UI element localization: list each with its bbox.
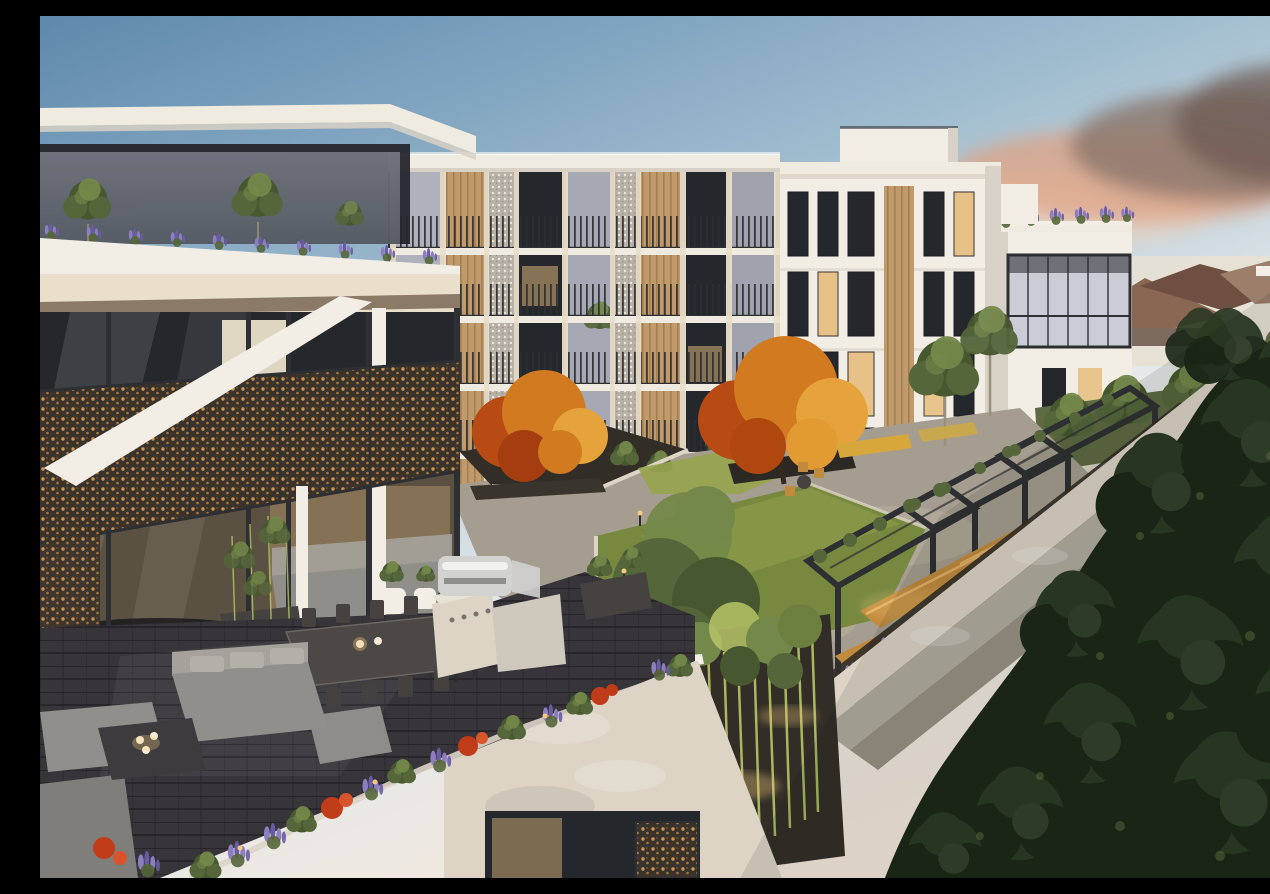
penthouse-terrace	[40, 274, 460, 670]
architectural-render	[40, 16, 1270, 878]
decorative-screen	[636, 822, 698, 878]
coffee-table	[98, 718, 206, 780]
glass-balcony	[1008, 246, 1130, 347]
render-canvas	[40, 16, 1270, 878]
